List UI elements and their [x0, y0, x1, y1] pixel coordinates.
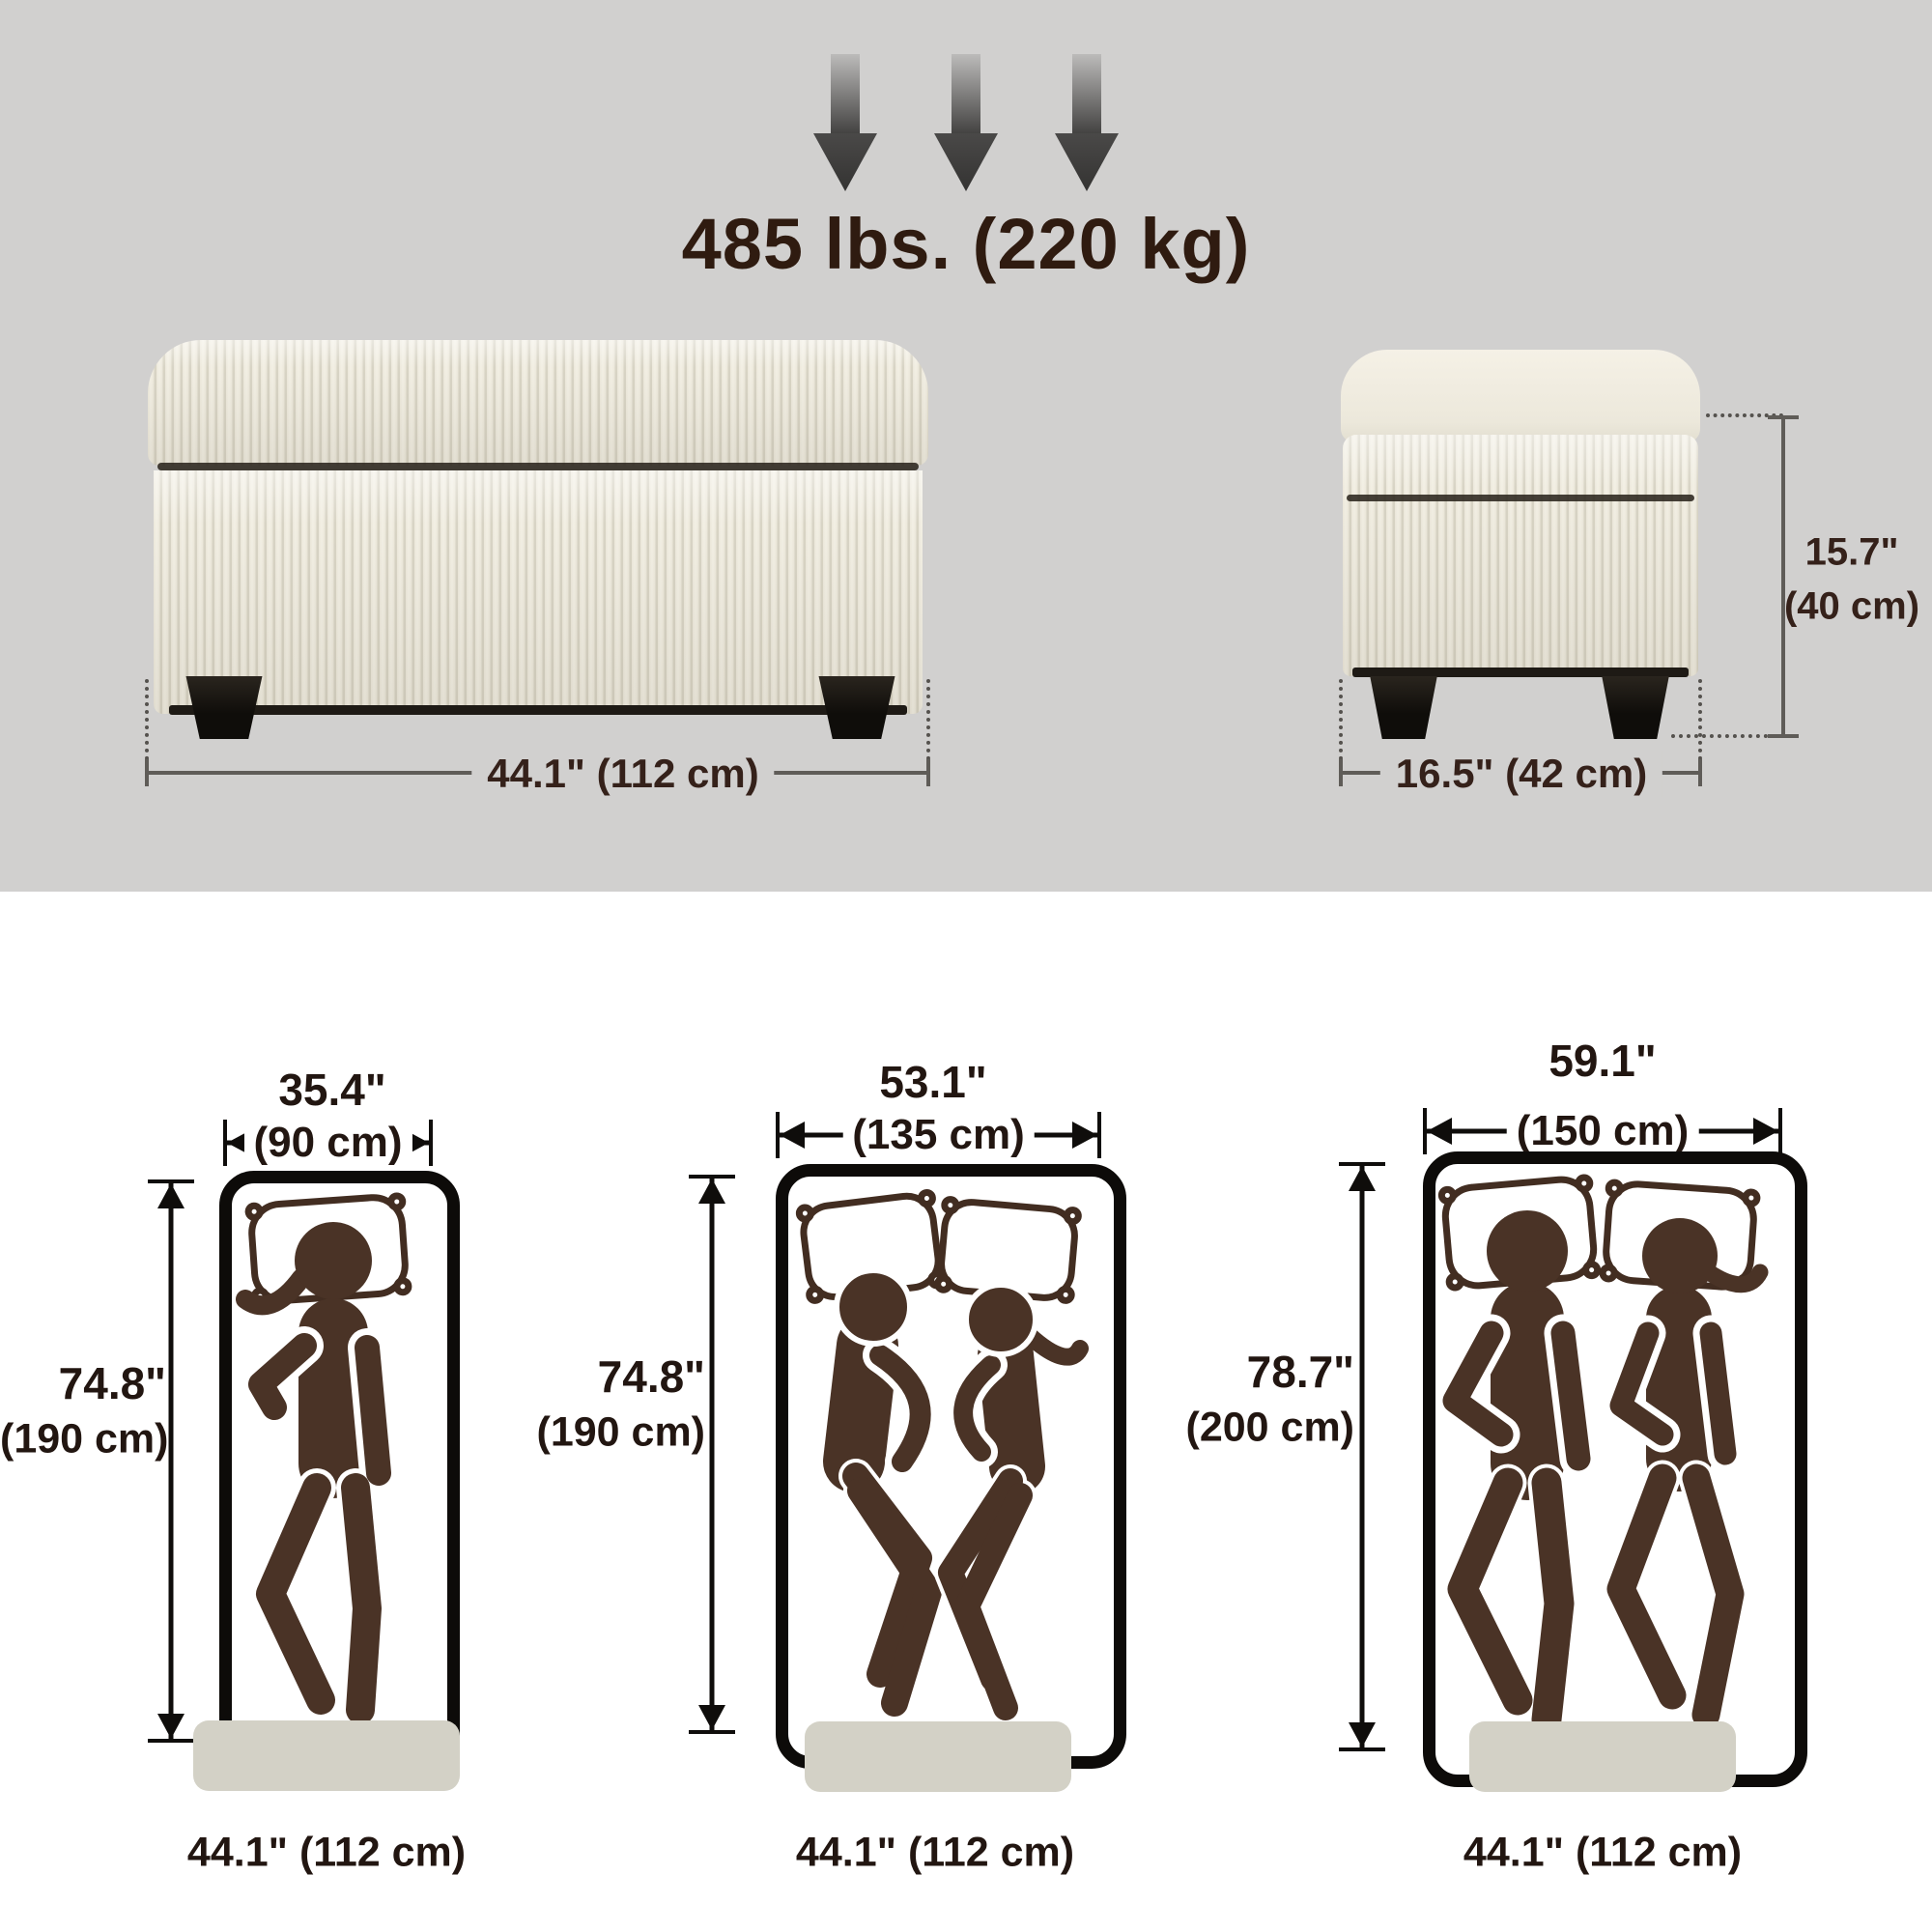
ottoman-lid-seam	[1347, 495, 1694, 501]
single-mattress	[219, 1171, 460, 1776]
ottoman-height-label-in: 15.7"	[1805, 531, 1899, 575]
bench-leg	[816, 676, 897, 739]
weight-capacity-label: 485 lbs. (220 kg)	[0, 203, 1932, 285]
bed3-width-label-in: 59.1"	[1548, 1035, 1656, 1087]
ottoman-leg	[1368, 676, 1439, 739]
bed3-bench-width-label: 44.1" (112 cm)	[1463, 1830, 1742, 1877]
storage-bench-side-view	[1341, 350, 1700, 739]
bench-width-label: 44.1" (112 cm)	[471, 751, 774, 797]
infographic-canvas: 485 lbs. (220 kg) 44.1" (112 cm) 16.5" (…	[0, 0, 1932, 1932]
bench-footprint-swatch	[805, 1721, 1071, 1792]
person-icon	[951, 1285, 1080, 1708]
bed1-width-label-in: 35.4"	[278, 1064, 385, 1116]
ottoman-height-dimension	[1768, 415, 1799, 738]
bench-bottom-trim	[169, 705, 907, 715]
extension-line	[145, 679, 149, 768]
bench-footprint-swatch	[1469, 1721, 1736, 1792]
bench-leg	[184, 676, 265, 739]
extension-line	[1671, 734, 1783, 738]
extension-line	[1698, 679, 1702, 768]
ottoman-body	[1343, 435, 1698, 676]
bed2-width-dimension: (135 cm)	[776, 1111, 1101, 1159]
bed1-length-label-in: 74.8"	[0, 1357, 166, 1409]
bed1-width-label-cm: (90 cm)	[243, 1119, 412, 1167]
bed2-length-label-in: 74.8"	[512, 1350, 705, 1403]
person-icon	[837, 1270, 928, 1703]
bed1-length-label-cm: (190 cm)	[0, 1416, 166, 1463]
bed3-length-label-in: 78.7"	[1161, 1346, 1354, 1398]
bench-body	[154, 470, 923, 714]
two-sleepers-figure	[788, 1177, 1089, 1731]
person-icon	[1621, 1218, 1760, 1715]
ottoman-height-label-cm: (40 cm)	[1784, 585, 1919, 629]
ottoman-bottom-trim	[1352, 668, 1689, 677]
bed2-length-label-cm: (190 cm)	[512, 1409, 705, 1457]
arrow-down-icon	[934, 54, 998, 191]
bed3-length-dimension	[1339, 1162, 1385, 1751]
bench-footprint-swatch	[193, 1720, 460, 1791]
extension-line	[926, 679, 930, 768]
storage-bench-front-view	[148, 340, 928, 739]
extension-line	[1339, 679, 1343, 768]
bed3-width-label-cm: (150 cm)	[1507, 1107, 1699, 1155]
ottoman-depth-label: 16.5" (42 cm)	[1380, 751, 1662, 797]
weight-arrows-down-icon	[773, 54, 1159, 194]
bed1-bench-width-label: 44.1" (112 cm)	[187, 1830, 466, 1877]
ottoman-leg	[1600, 676, 1671, 739]
ottoman-top-cushion	[1341, 350, 1700, 442]
two-sleepers-figure	[1435, 1164, 1770, 1749]
bed2-width-label-cm: (135 cm)	[842, 1111, 1035, 1159]
bench-lid-seam	[157, 463, 919, 470]
bench-lid	[148, 340, 928, 466]
bed1-width-dimension: (90 cm)	[223, 1119, 433, 1167]
bed3-width-dimension: (150 cm)	[1423, 1107, 1782, 1155]
bed2-bench-width-label: 44.1" (112 cm)	[796, 1830, 1074, 1877]
bed2-width-label-in: 53.1"	[879, 1056, 986, 1108]
arrow-down-icon	[813, 54, 877, 191]
queen-mattress	[1423, 1151, 1807, 1787]
single-sleeper-figure	[232, 1183, 422, 1738]
double-mattress	[776, 1164, 1126, 1769]
arrow-down-icon	[1055, 54, 1119, 191]
bed3-length-label-cm: (200 cm)	[1161, 1405, 1354, 1452]
